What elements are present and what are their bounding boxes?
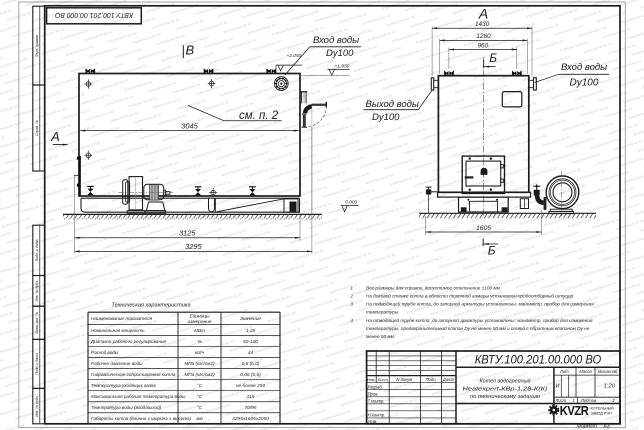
svg-text:3125: 3125 bbox=[179, 229, 196, 238]
svg-text:1260: 1260 bbox=[476, 33, 491, 40]
svg-text:Масса: Масса bbox=[579, 369, 592, 374]
svg-text:Вход воды: Вход воды bbox=[561, 62, 607, 73]
svg-text:2: 2 bbox=[349, 293, 353, 298]
svg-text:температуры, предохранительный: температуры, предохранительный клапан Dу… bbox=[366, 325, 590, 331]
svg-text:Перв. примен.: Перв. примен. bbox=[35, 34, 39, 57]
svg-text:Все размеры для справок, допус: Все размеры для справок, допустимое откл… bbox=[366, 285, 501, 290]
svg-text:Гидравлическое сопротивление к: Гидравлическое сопротивление котла bbox=[91, 372, 176, 377]
svg-text:Dy100: Dy100 bbox=[372, 112, 400, 123]
svg-text:м3/ч: м3/ч bbox=[195, 350, 205, 355]
svg-text:Диапазон рабочего регулировани: Диапазон рабочего регулирования bbox=[90, 339, 167, 344]
svg-text:°С: °С bbox=[197, 383, 203, 388]
svg-text:1,28: 1,28 bbox=[246, 328, 256, 334]
svg-text:Лист: Лист bbox=[554, 398, 566, 403]
svg-text:мод.: мод. bbox=[560, 191, 565, 194]
svg-text:А3: А3 bbox=[603, 424, 610, 430]
svg-text:Dy100: Dy100 bbox=[326, 48, 354, 59]
svg-text:Инв. № дубл.: Инв. № дубл. bbox=[35, 280, 39, 302]
svg-text:ЗАВОД РЭП: ЗАВОД РЭП bbox=[591, 411, 612, 415]
svg-text:Подп.: Подп. bbox=[426, 377, 437, 382]
svg-text:°С: °С bbox=[197, 405, 203, 410]
svg-text:Расход воды: Расход воды bbox=[91, 350, 119, 355]
svg-text:Н.контр.: Н.контр. bbox=[368, 413, 386, 418]
svg-text:А: А bbox=[478, 6, 488, 22]
svg-text:Листов: Листов bbox=[580, 398, 597, 403]
svg-text:960: 960 bbox=[478, 42, 489, 49]
svg-text:Справ. №: Справ. № bbox=[35, 120, 39, 136]
svg-text:Габариты котла (длинна х ширин: Габариты котла (длинна х ширина х высота… bbox=[91, 416, 192, 421]
svg-text:Выход воды: Выход воды bbox=[366, 99, 419, 110]
svg-text:1430: 1430 bbox=[475, 21, 490, 28]
svg-text:50-100: 50-100 bbox=[243, 339, 258, 345]
svg-text:Температура уходящих газов: Температура уходящих газов bbox=[91, 383, 156, 388]
svg-text:Температура воды (вход/выход): Температура воды (вход/выход) bbox=[91, 405, 162, 410]
svg-text:Дата: Дата bbox=[442, 377, 455, 382]
svg-text:Утв.: Утв. bbox=[368, 419, 378, 424]
svg-text:115: 115 bbox=[247, 394, 255, 400]
svg-text:N докум.: N докум. bbox=[396, 377, 413, 382]
svg-text:3295х1605х2050: 3295х1605х2050 bbox=[232, 416, 269, 422]
svg-text:Heatexpert-КВр-1,28-К(К): Heatexpert-КВр-1,28-К(К) bbox=[463, 386, 548, 392]
svg-text:КВТУ.100.201.00.000 ВО: КВТУ.100.201.00.000 ВО bbox=[55, 11, 133, 20]
svg-text:КОТЕЛЬНЫЙ: КОТЕЛЬНЫЙ bbox=[591, 406, 614, 410]
svg-text:%: % bbox=[197, 339, 201, 344]
svg-text:Вход воды: Вход воды bbox=[313, 35, 359, 46]
svg-text:Инв. № подл.: Инв. № подл. bbox=[35, 395, 39, 417]
svg-text:KVZR: KVZR bbox=[560, 404, 589, 418]
svg-text:Формат: Формат bbox=[577, 424, 597, 430]
svg-text:Б: Б bbox=[488, 244, 496, 258]
svg-text:В: В bbox=[186, 43, 195, 58]
svg-text:70/95: 70/95 bbox=[244, 405, 256, 411]
svg-text:Т.контр.: Т.контр. bbox=[368, 399, 385, 404]
svg-text:Лит.: Лит. bbox=[559, 369, 570, 374]
svg-text:На подводящей трубе котла, д: На подводящей трубе котла, до запорной а… bbox=[366, 300, 594, 306]
svg-text:МПа (кгс/см2): МПа (кгс/см2) bbox=[184, 372, 214, 377]
svg-text:Изм.: Изм. bbox=[367, 377, 375, 382]
svg-text:На боковой стенке котла в обла: На боковой стенке котла в области топочн… bbox=[366, 292, 574, 298]
svg-text:Максимальная рабочая температу: Максимальная рабочая температура воды bbox=[91, 394, 186, 399]
svg-text:см. п. 2: см. п. 2 bbox=[239, 110, 279, 122]
svg-text:Техническая характеристика: Техническая характеристика bbox=[111, 302, 190, 308]
svg-text:А: А bbox=[50, 129, 60, 144]
svg-text:4: 4 bbox=[350, 318, 353, 323]
svg-text:КВТУ.100.201.00.000 ВО: КВТУ.100.201.00.000 ВО bbox=[475, 353, 602, 367]
svg-text:+1.930: +1.930 bbox=[335, 63, 350, 69]
svg-text:0,6 (6,0): 0,6 (6,0) bbox=[242, 361, 260, 367]
svg-text:менее 50 мм.: менее 50 мм. bbox=[366, 334, 395, 339]
svg-text:+2.050: +2.050 bbox=[287, 53, 302, 59]
svg-text:Подп. и дата: Подп. и дата bbox=[35, 353, 39, 375]
svg-text:мм: мм bbox=[196, 416, 203, 421]
svg-text:°С: °С bbox=[197, 394, 203, 399]
svg-text:МПа (кгс/см2): МПа (кгс/см2) bbox=[184, 361, 214, 366]
svg-text:И: И bbox=[556, 384, 560, 390]
svg-text:1605: 1605 bbox=[476, 225, 491, 232]
svg-text:не более 250: не более 250 bbox=[236, 383, 266, 389]
svg-text:Б: Б bbox=[489, 51, 497, 65]
svg-text:Масштаб: Масштаб bbox=[598, 369, 618, 374]
svg-text:0,06 (0,6): 0,06 (0,6) bbox=[240, 372, 261, 378]
svg-text:Пров.: Пров. bbox=[368, 392, 379, 397]
svg-text:Лист: Лист bbox=[377, 377, 389, 382]
svg-text:Взам. инв. №: Взам. инв. № bbox=[35, 312, 39, 334]
svg-text:Подп. и дата: Подп. и дата bbox=[35, 239, 39, 261]
svg-text:Разраб.: Разраб. bbox=[368, 384, 383, 389]
svg-text:МВт: МВт bbox=[194, 328, 205, 333]
svg-text:измерения: измерения bbox=[187, 320, 211, 325]
svg-text:3045: 3045 bbox=[181, 121, 198, 130]
svg-text:1: 1 bbox=[572, 398, 574, 403]
svg-text:Рабочее давление воды: Рабочее давление воды bbox=[91, 361, 143, 366]
svg-text:Номинальная мощность: Номинальная мощность bbox=[91, 328, 145, 333]
svg-text:3295: 3295 bbox=[185, 242, 202, 251]
svg-text:Значение: Значение bbox=[240, 316, 261, 322]
svg-text:44: 44 bbox=[248, 350, 254, 356]
svg-text:0.000: 0.000 bbox=[345, 200, 357, 206]
svg-text:1:20: 1:20 bbox=[604, 383, 616, 389]
svg-text:Единицы: Единицы bbox=[189, 314, 210, 320]
svg-text:по техническому заданию: по техническому заданию bbox=[470, 394, 541, 400]
svg-text:Dy100: Dy100 bbox=[570, 77, 599, 88]
svg-text:Котел водогрейный: Котел водогрейный bbox=[480, 378, 531, 385]
svg-text:На отводящей трубе котла ,до з: На отводящей трубе котла ,до запорной ар… bbox=[366, 317, 593, 323]
svg-text:3: 3 bbox=[350, 301, 353, 306]
svg-text:температуры.: температуры. bbox=[366, 309, 400, 314]
svg-text:Наименование показателя: Наименование показателя bbox=[91, 316, 153, 322]
svg-text:1: 1 bbox=[350, 285, 353, 290]
